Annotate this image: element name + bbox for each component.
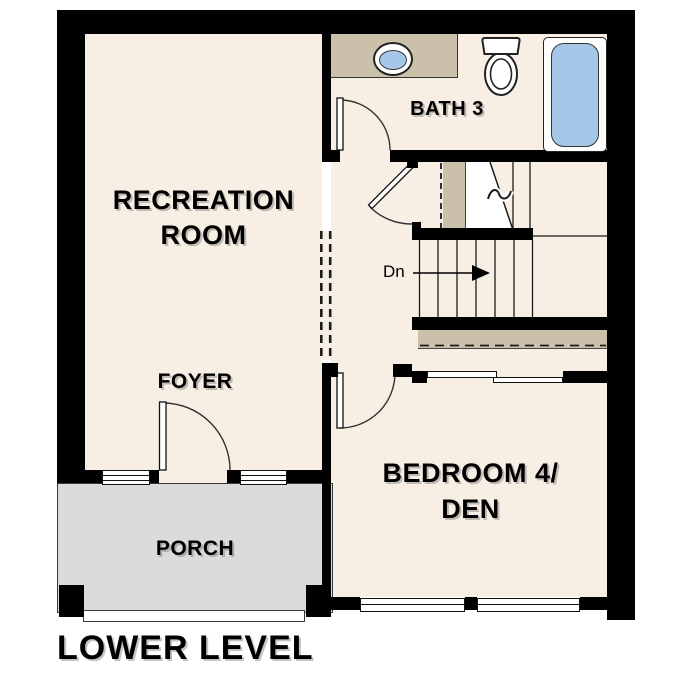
floor-plan: RECREATION ROOM BATH 3 FOYER BEDROOM 4/ … <box>0 0 687 687</box>
porch-post-left <box>59 585 84 617</box>
cased-opening-dashes <box>321 231 330 360</box>
foyer-window-right <box>240 470 287 485</box>
foyer-label: FOYER <box>125 370 265 393</box>
porch-post-right <box>306 585 331 617</box>
wall-top-exterior <box>57 10 635 34</box>
wall-bedroom-west <box>322 377 331 612</box>
wall-rec-east-upper <box>322 34 331 160</box>
wall-right-exterior <box>607 10 635 620</box>
wall-foyer-front-1 <box>57 470 102 483</box>
wall-understair-door-stub-top <box>407 160 418 168</box>
bedroom-door <box>337 373 395 428</box>
wall-closet-stub-right <box>563 371 608 383</box>
wall-bedroom-west-stub <box>322 363 338 377</box>
upper-stair-treads <box>513 162 607 236</box>
wall-stair-mid-band <box>412 228 533 240</box>
wall-bedroom-front-mullion <box>465 597 477 610</box>
wall-foyer-front-4 <box>287 470 322 483</box>
bath3-label: BATH 3 <box>387 98 507 120</box>
wall-left-exterior <box>57 10 85 483</box>
wall-foyer-front-2 <box>150 470 159 483</box>
wall-bedroom-door-stub <box>393 364 412 377</box>
recreation-room-label: RECREATION ROOM <box>85 183 322 253</box>
bedroom-window-right <box>477 598 580 612</box>
stair-dn-label: Dn <box>383 262 405 282</box>
understair-door <box>369 163 414 224</box>
plan-title: LOWER LEVEL <box>57 630 357 667</box>
bedroom4-den-label: BEDROOM 4/ DEN <box>333 455 608 527</box>
bathtub-basin-icon <box>551 43 599 147</box>
entry-door <box>160 402 231 470</box>
closet-bypass-door-left <box>427 371 497 378</box>
wall-bath-door-stub <box>322 150 340 162</box>
bath-door <box>337 98 390 150</box>
wall-closet-stub-left <box>412 371 427 383</box>
wall-bedroom-front-2 <box>580 597 635 610</box>
foyer-window-left <box>102 470 150 485</box>
porch-label: PORCH <box>125 537 265 560</box>
wall-foyer-front-3 <box>227 470 240 483</box>
toilet-icon <box>475 34 535 104</box>
sink-basin-icon <box>379 50 407 70</box>
wall-stair-bottom-band <box>412 317 608 330</box>
stair-direction-arrow <box>413 265 490 281</box>
closet-bypass-door-right <box>493 377 563 384</box>
bedroom-window-left <box>360 598 465 612</box>
